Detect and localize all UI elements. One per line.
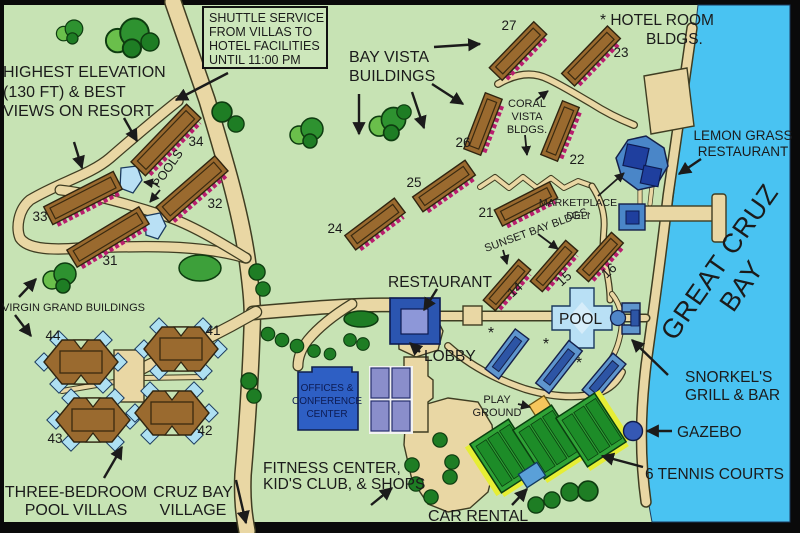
building-number: 32: [207, 196, 222, 211]
elevation-label: (130 FT) & BEST: [3, 84, 126, 101]
lobby-label: LOBBY: [424, 348, 476, 365]
promenade-node: [463, 306, 482, 325]
tree-icon: [344, 334, 357, 347]
cruz-bay-village-label: VILLAGE: [160, 502, 227, 519]
car-rental-label: CAR RENTAL: [428, 508, 528, 525]
shuttle-note-line: FROM VILLAS TO: [209, 25, 312, 39]
tree-icon: [241, 373, 257, 389]
building-number: 34: [188, 134, 204, 149]
tree-icon: [256, 282, 270, 296]
tree-icon: [344, 311, 378, 327]
tree-icon: [405, 458, 419, 472]
shuttle-note: SHUTTLE SERVICE FROM VILLAS TO HOTEL FAC…: [203, 7, 327, 68]
tree-icon: [433, 433, 447, 447]
coral-vista-label: CORAL: [508, 98, 546, 110]
tree-icon: [397, 105, 411, 119]
hotel-room-label: BLDGS.: [646, 31, 703, 48]
pool-label: POOL: [559, 311, 602, 328]
tree-icon: [141, 33, 159, 51]
tree-icon: [445, 455, 459, 469]
tree-icon: [424, 490, 438, 504]
coral-vista-label: VISTA: [512, 111, 544, 123]
asterisk-marker: *: [543, 336, 549, 353]
tree-icon: [561, 483, 579, 501]
tree-icon: [179, 255, 221, 281]
lemon-grass-label: LEMON GRASS: [693, 128, 792, 143]
building-number: 27: [501, 18, 516, 33]
resort-map: SHUTTLE SERVICE FROM VILLAS TO HOTEL FAC…: [0, 0, 800, 533]
hotel-room-label: * HOTEL ROOM: [600, 12, 714, 29]
snorkels-label: GRILL & BAR: [685, 387, 780, 404]
tree-icon: [275, 333, 289, 347]
restaurant-building: [390, 298, 440, 344]
coral-vista-label: BLDGS.: [507, 124, 547, 136]
tree-icon: [249, 264, 265, 280]
tree-icon: [324, 348, 336, 360]
building-number: 21: [478, 205, 493, 220]
marketplace-deli-label: MARKETPLACE: [539, 197, 617, 209]
tree-icon: [357, 338, 370, 351]
tree-icon: [544, 492, 560, 508]
building-number: 22: [569, 152, 584, 167]
shuttle-note-line: UNTIL 11:00 PM: [209, 53, 301, 67]
gazebo-label: GAZEBO: [677, 424, 742, 441]
shuttle-note-line: SHUTTLE SERVICE: [209, 11, 324, 25]
marketplace-deli-building: [619, 204, 645, 230]
offices-label: OFFICES &: [301, 383, 354, 394]
building-number: 33: [32, 209, 47, 224]
elevation-label: VIEWS ON RESORT: [3, 103, 154, 120]
lemon-grass-label: RESTAURANT: [698, 144, 789, 159]
bay-vista-label: BAY VISTA: [349, 49, 429, 66]
playground-label: GROUND: [473, 407, 522, 419]
playground-label: PLAY: [483, 394, 511, 406]
offices-label: CENTER: [306, 409, 347, 420]
building-number: 24: [327, 221, 343, 236]
fitness-label: FITNESS CENTER,: [263, 460, 401, 477]
elevation-label: HIGHEST ELEVATION: [3, 64, 166, 81]
beach-area: [644, 68, 694, 134]
fitness-label: KID'S CLUB, & SHOPS: [263, 476, 425, 493]
hot-tub: [611, 311, 626, 326]
three-bedroom-label: POOL VILLAS: [25, 502, 128, 519]
asterisk-marker: *: [576, 355, 582, 372]
virgin-grand-label: VIRGIN GRAND BUILDINGS: [2, 302, 145, 314]
tree-icon: [247, 389, 261, 403]
tree-icon: [443, 470, 457, 484]
three-bedroom-label: THREE-BEDROOM: [5, 484, 147, 501]
building-number: 44: [45, 328, 61, 343]
shuttle-note-line: HOTEL FACILITIES: [209, 39, 320, 53]
restaurant-label: RESTAURANT: [388, 274, 492, 291]
building-number: 42: [197, 423, 212, 438]
tree-icon: [578, 481, 598, 501]
asterisk-marker: *: [488, 325, 494, 342]
building-number: 25: [406, 175, 421, 190]
building-number: 43: [47, 431, 62, 446]
building-number: 23: [613, 45, 628, 60]
offices-label: CONFERENCE: [292, 396, 362, 407]
building-number: 41: [205, 323, 220, 338]
tree-icon: [261, 327, 275, 341]
pier: [638, 206, 718, 221]
tennis-label: 6 TENNIS COURTS: [645, 466, 784, 483]
building-number: 31: [102, 253, 117, 268]
map-canvas: SHUTTLE SERVICE FROM VILLAS TO HOTEL FAC…: [0, 0, 800, 533]
tree-icon: [308, 345, 321, 358]
bay-vista-label: BUILDINGS: [349, 68, 435, 85]
tree-icon: [528, 497, 544, 513]
building-number: 26: [455, 135, 470, 150]
tree-icon: [228, 116, 244, 132]
tree-icon: [290, 339, 304, 353]
snorkels-label: SNORKEL'S: [685, 369, 772, 386]
gazebo-marker: [624, 422, 643, 441]
cruz-bay-village-label: CRUZ BAY: [153, 484, 233, 501]
